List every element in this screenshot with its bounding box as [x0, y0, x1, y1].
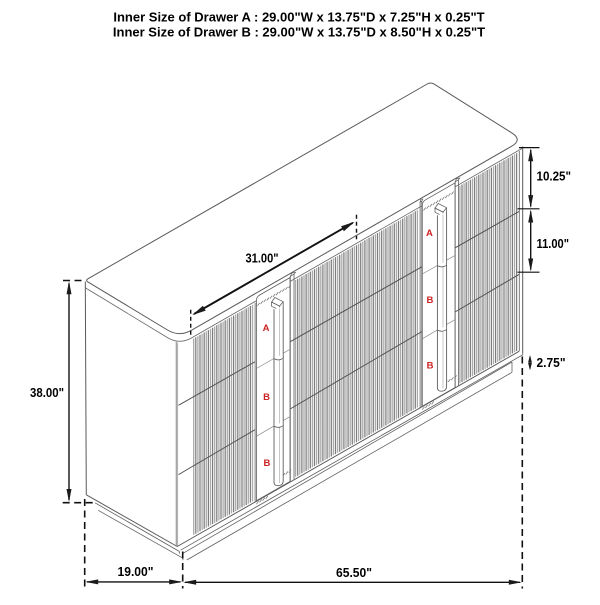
- svg-text:31.00": 31.00": [246, 251, 279, 266]
- svg-text:B: B: [426, 295, 433, 306]
- svg-text:10.25": 10.25": [537, 169, 572, 184]
- svg-text:11.00": 11.00": [537, 236, 570, 251]
- svg-text:A: A: [263, 323, 270, 334]
- svg-text:B: B: [427, 360, 434, 371]
- svg-text:19.00": 19.00": [118, 564, 154, 579]
- svg-text:38.00": 38.00": [30, 385, 64, 400]
- svg-text:2.75": 2.75": [537, 355, 566, 370]
- svg-text:Inner Size of Drawer A : 29.00: Inner Size of Drawer A : 29.00"W x 13.75…: [113, 9, 484, 24]
- svg-text:65.50": 65.50": [336, 565, 372, 580]
- svg-text:A: A: [426, 228, 433, 239]
- svg-text:B: B: [263, 458, 270, 469]
- svg-text:B: B: [263, 392, 270, 403]
- svg-text:Inner Size of Drawer B : 29.00: Inner Size of Drawer B : 29.00"W x 13.75…: [113, 25, 485, 40]
